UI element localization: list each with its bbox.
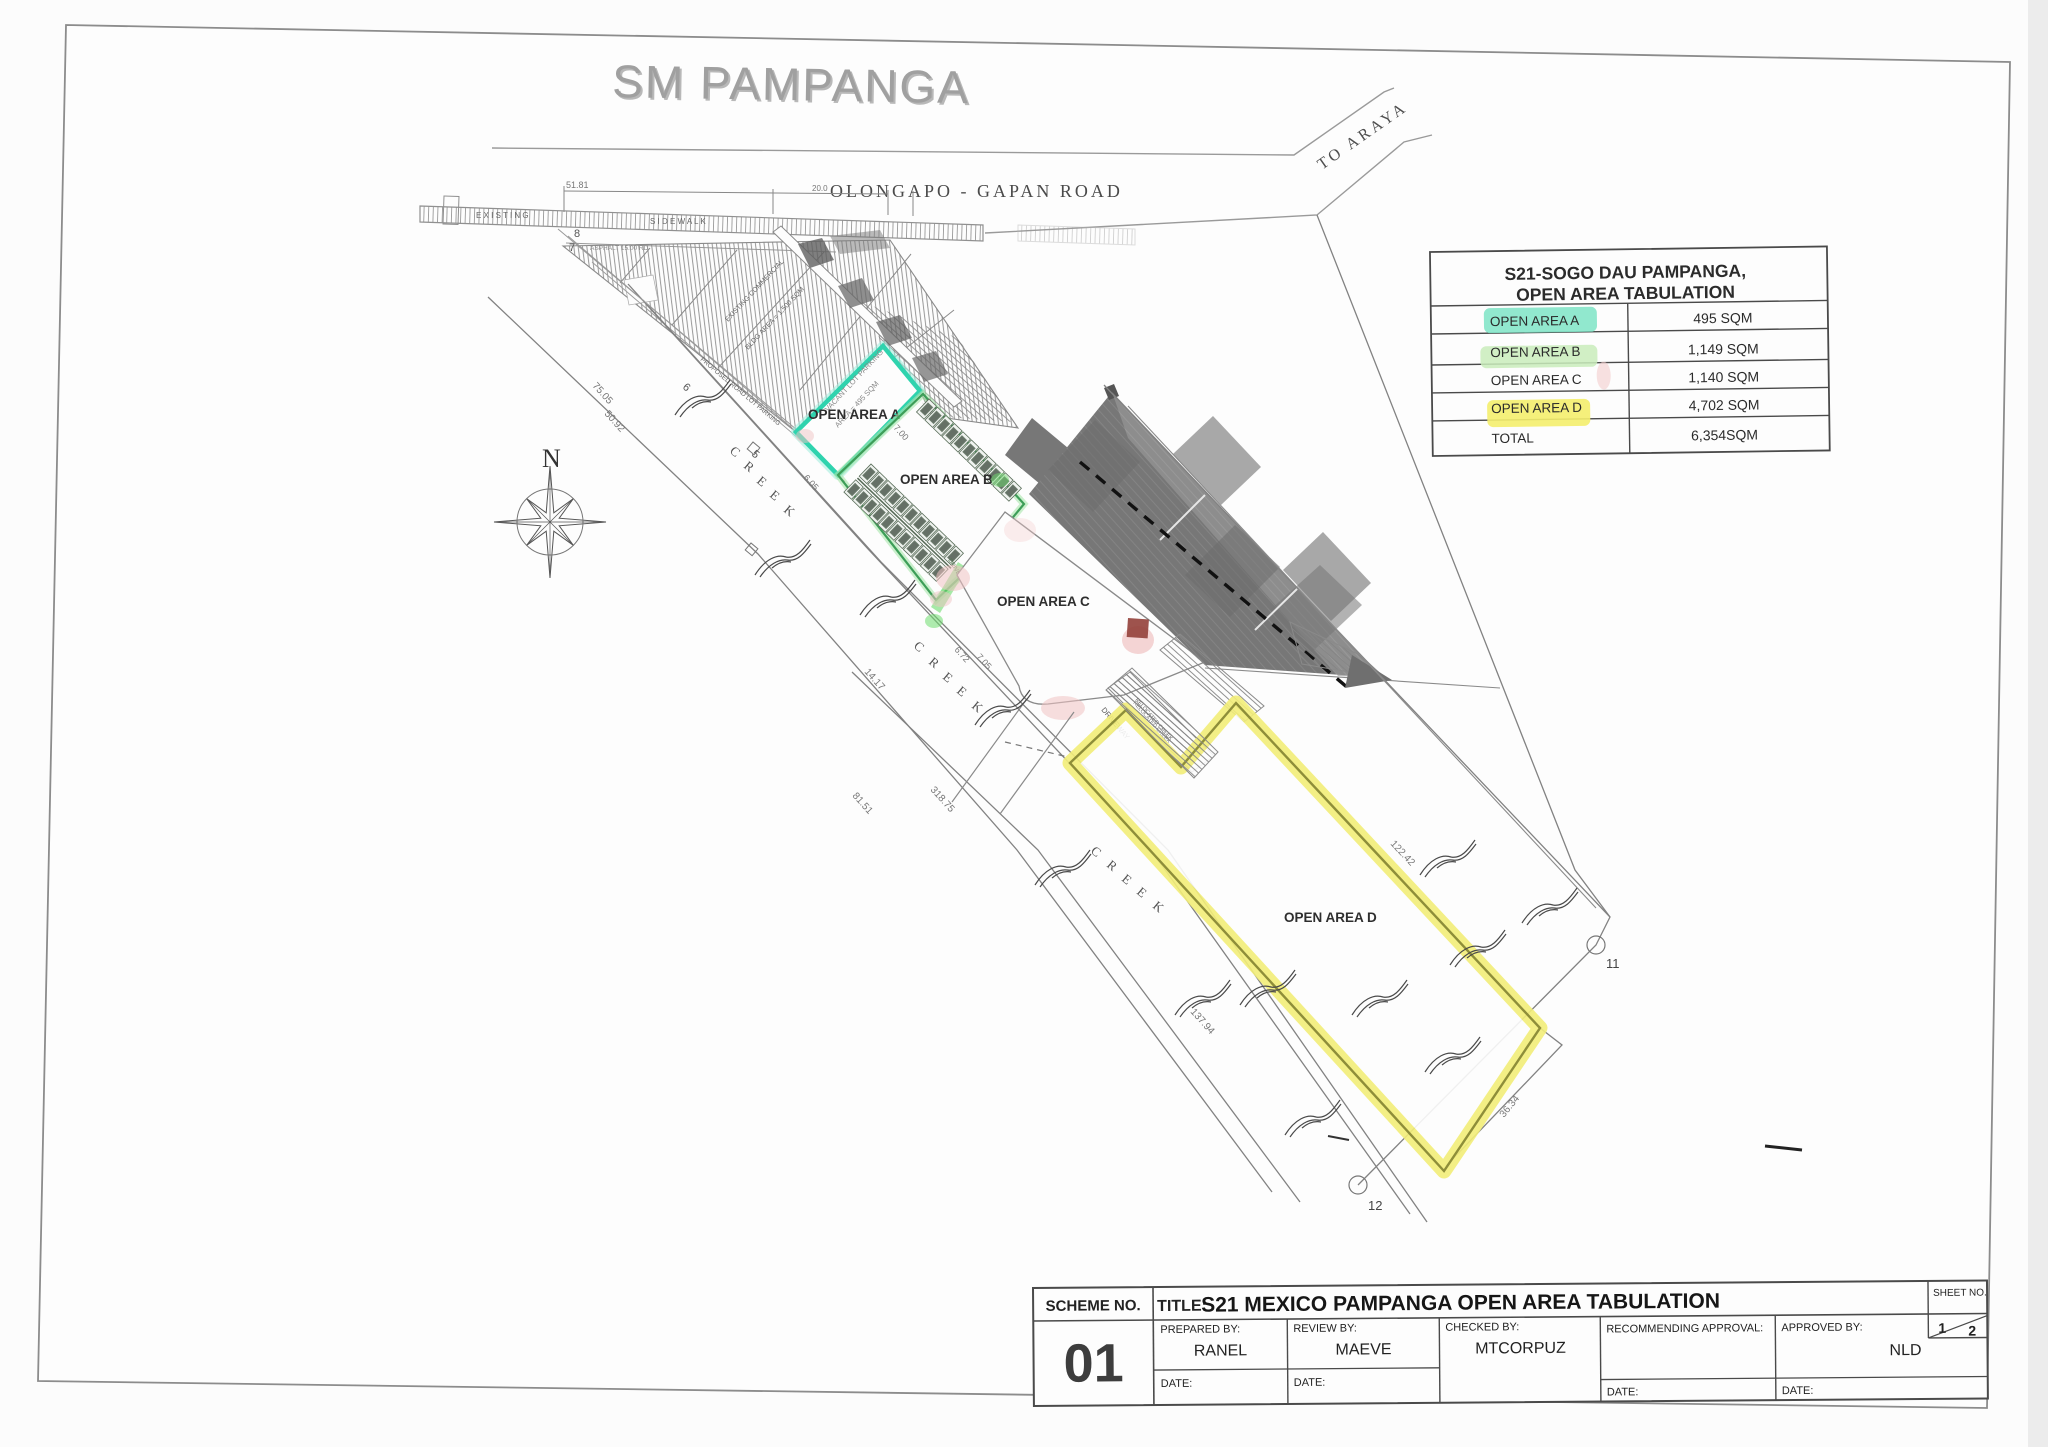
svg-text:RECOMMENDING APPROVAL:: RECOMMENDING APPROVAL: bbox=[1606, 1322, 1763, 1335]
svg-text:SM PAMPANGA: SM PAMPANGA bbox=[612, 55, 971, 113]
svg-text:OLONGAPO - GAPAN ROAD: OLONGAPO - GAPAN ROAD bbox=[830, 181, 1123, 201]
svg-text:495 SQM: 495 SQM bbox=[1693, 310, 1752, 327]
svg-text:7: 7 bbox=[569, 242, 575, 254]
svg-text:OPEN AREA A: OPEN AREA A bbox=[1490, 313, 1579, 329]
svg-text:4,702 SQM: 4,702 SQM bbox=[1689, 396, 1760, 413]
svg-text:1: 1 bbox=[1938, 1320, 1946, 1336]
svg-text:DATE:: DATE: bbox=[1294, 1377, 1326, 1389]
svg-text:S I D E W A L K: S I D E W A L K bbox=[650, 217, 706, 226]
svg-text:SHEET NO.: SHEET NO. bbox=[1933, 1288, 1987, 1299]
svg-text:S21-SOGO DAU PAMPANGA,: S21-SOGO DAU PAMPANGA, bbox=[1504, 261, 1746, 284]
svg-text:SCHEME NO.: SCHEME NO. bbox=[1046, 1297, 1141, 1315]
svg-text:CHECKED BY:: CHECKED BY: bbox=[1445, 1321, 1519, 1334]
svg-text:MTCORPUZ: MTCORPUZ bbox=[1475, 1340, 1566, 1358]
svg-text:1,140 SQM: 1,140 SQM bbox=[1688, 368, 1759, 385]
svg-text:OPEN AREA C: OPEN AREA C bbox=[997, 594, 1090, 609]
svg-text:TOTAL: TOTAL bbox=[1491, 431, 1534, 447]
svg-text:OPEN AREA D: OPEN AREA D bbox=[1284, 910, 1377, 925]
svg-text:OPEN AREA B: OPEN AREA B bbox=[900, 472, 993, 487]
svg-text:DATE:: DATE: bbox=[1161, 1378, 1193, 1390]
svg-text:51.81: 51.81 bbox=[566, 180, 589, 190]
svg-text:2: 2 bbox=[1968, 1323, 1976, 1339]
svg-text:11: 11 bbox=[1606, 956, 1620, 971]
svg-text:DATE:: DATE: bbox=[1782, 1385, 1814, 1397]
svg-text:OPEN AREA A: OPEN AREA A bbox=[808, 407, 901, 422]
svg-text:20.0: 20.0 bbox=[812, 184, 828, 193]
svg-text:MAEVE: MAEVE bbox=[1335, 1341, 1391, 1358]
svg-text:6,354SQM: 6,354SQM bbox=[1691, 426, 1758, 443]
svg-text:OPEN AREA C: OPEN AREA C bbox=[1491, 372, 1582, 388]
svg-text:OPEN AREA TABULATION: OPEN AREA TABULATION bbox=[1516, 282, 1735, 305]
svg-text:E X I S T I N G: E X I S T I N G bbox=[476, 211, 529, 220]
svg-text:N: N bbox=[542, 444, 561, 473]
svg-text:1,149 SQM: 1,149 SQM bbox=[1688, 340, 1759, 357]
svg-text:DATE:: DATE: bbox=[1607, 1386, 1639, 1398]
svg-text:S21 MEXICO PAMPANGA OPEN AREA: S21 MEXICO PAMPANGA OPEN AREA TABULATION bbox=[1201, 1290, 1720, 1317]
svg-text:RANEL: RANEL bbox=[1194, 1342, 1248, 1359]
svg-text:APPROVED BY:: APPROVED BY: bbox=[1781, 1321, 1862, 1334]
svg-text:TITLE:: TITLE: bbox=[1157, 1298, 1207, 1315]
svg-text:NLD: NLD bbox=[1889, 1342, 1921, 1359]
svg-text:REVIEW BY:: REVIEW BY: bbox=[1293, 1322, 1357, 1334]
svg-text:8: 8 bbox=[574, 228, 580, 240]
svg-text:PREPARED BY:: PREPARED BY: bbox=[1160, 1323, 1240, 1336]
svg-text:OPEN AREA D: OPEN AREA D bbox=[1491, 400, 1582, 416]
svg-text:OPEN AREA B: OPEN AREA B bbox=[1490, 344, 1580, 360]
svg-text:01: 01 bbox=[1063, 1333, 1124, 1393]
svg-text:12: 12 bbox=[1368, 1198, 1382, 1213]
